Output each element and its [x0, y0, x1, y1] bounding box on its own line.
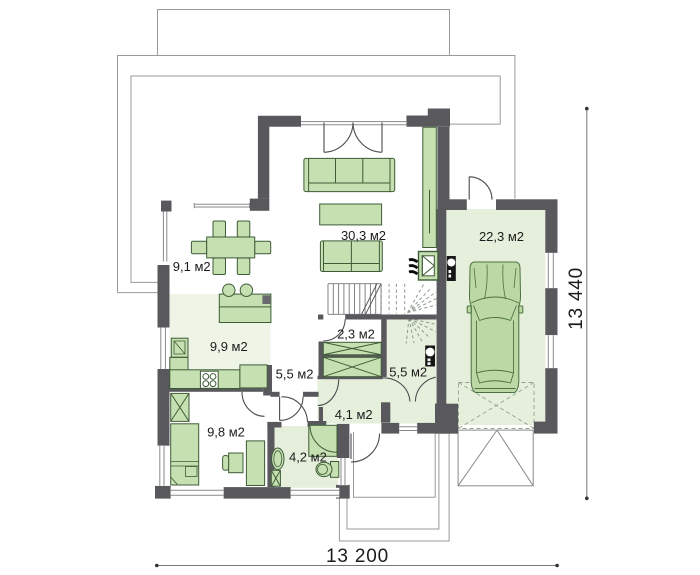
svg-text:13 200: 13 200: [326, 546, 389, 567]
svg-text:9,1 м2: 9,1 м2: [173, 259, 211, 274]
svg-text:2,3 м2: 2,3 м2: [337, 326, 375, 341]
svg-text:22,3 м2: 22,3 м2: [479, 229, 524, 244]
svg-text:30,3 м2: 30,3 м2: [341, 228, 386, 243]
svg-text:9,8 м2: 9,8 м2: [207, 425, 245, 440]
svg-text:5,5 м2: 5,5 м2: [389, 364, 427, 379]
svg-text:4,2 м2: 4,2 м2: [289, 450, 327, 465]
svg-text:5,5 м2: 5,5 м2: [276, 367, 314, 382]
svg-text:13 440: 13 440: [566, 267, 587, 330]
svg-text:9,9 м2: 9,9 м2: [210, 339, 248, 354]
svg-text:4,1 м2: 4,1 м2: [335, 407, 373, 422]
